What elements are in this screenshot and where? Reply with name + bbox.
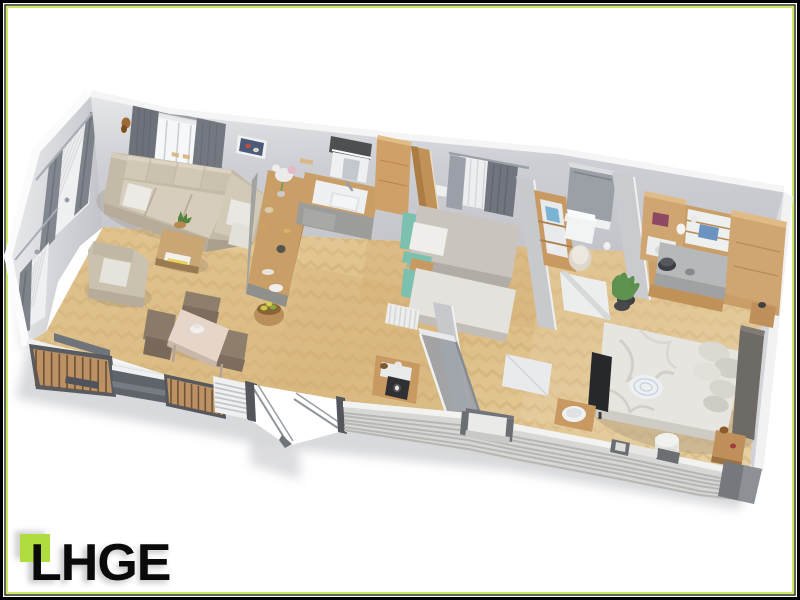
svg-text:LHGE: LHGE: [30, 534, 170, 592]
